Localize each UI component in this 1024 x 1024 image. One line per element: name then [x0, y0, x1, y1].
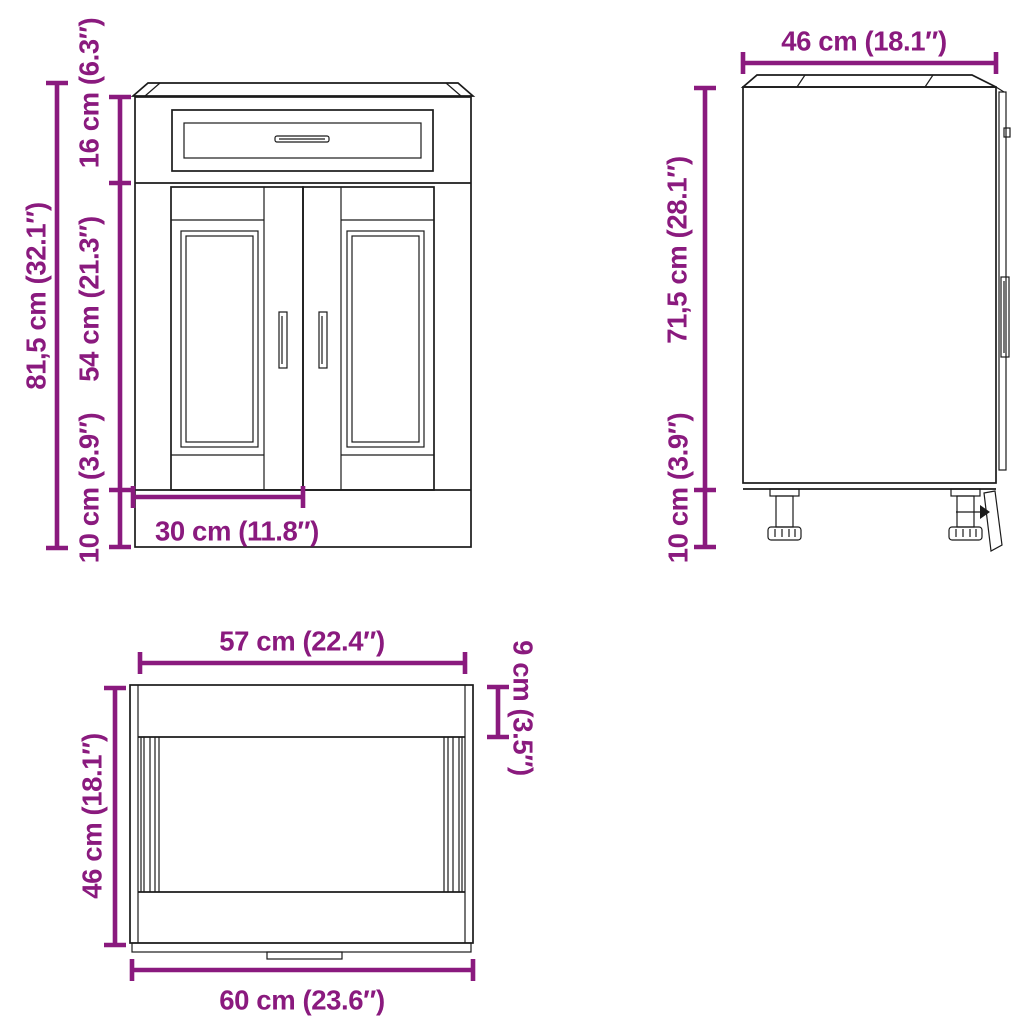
top-view-outline	[130, 685, 473, 943]
side-view: 46 cm (18.1″) 71,5 cm (28.1″) 10 cm (3.9…	[662, 26, 1011, 564]
left-foot-knurling	[775, 529, 795, 537]
door-edge-profile	[999, 92, 1006, 470]
dim-label-leg-height: 10 cm (3.9″)	[663, 413, 694, 564]
front-view-dimensions: 81,5 cm (32.1″) 16 cm (6.3″) 54 cm (21.3…	[21, 18, 319, 564]
left-foot-stem	[776, 496, 793, 527]
dim-label-front-band-depth: 9 cm (3.5″)	[508, 640, 539, 776]
dim-label-drawer-height: 16 cm (6.3″)	[74, 18, 105, 169]
right-door-panel-inner	[352, 236, 419, 442]
plinth-clip-arrow	[980, 505, 990, 519]
top-view-drawing	[130, 685, 473, 959]
dim-label-door-width: 30 cm (11.8″)	[155, 516, 319, 547]
right-door-rails	[341, 220, 434, 455]
left-door-handle	[279, 312, 287, 368]
dim-line-height-segments	[109, 97, 131, 547]
dim-label-total-width: 60 cm (23.6″)	[219, 985, 384, 1016]
left-door-rails	[171, 220, 264, 455]
front-view: 81,5 cm (32.1″) 16 cm (6.3″) 54 cm (21.3…	[21, 18, 474, 564]
right-foot-plate	[951, 489, 980, 496]
left-foot-plate	[770, 489, 799, 496]
left-door	[171, 187, 303, 490]
right-foot-base	[949, 527, 982, 540]
countertop-bevel-seams	[145, 83, 461, 96]
cabinet-dimension-diagram: 81,5 cm (32.1″) 16 cm (6.3″) 54 cm (21.3…	[0, 0, 1024, 1024]
right-door-panel-outer	[347, 231, 424, 447]
worktop-front-edge-strip	[132, 943, 471, 952]
left-foot	[768, 489, 801, 540]
top-view-dimensions: 57 cm (22.4″) 9 cm (3.5″) 46 cm (18.1″) …	[77, 626, 539, 1016]
dim-label-top-depth: 46 cm (18.1″)	[77, 733, 108, 898]
right-door-handle	[319, 312, 327, 368]
left-door-panel-inner	[186, 236, 253, 442]
side-panel-body	[743, 87, 996, 483]
right-door	[303, 187, 434, 490]
hinge-lines-left	[141, 737, 159, 892]
dim-label-total-height: 81,5 cm (32.1″)	[21, 202, 52, 390]
side-top-slab	[743, 75, 996, 87]
left-door-panel-outer	[181, 231, 258, 447]
side-view-drawing	[743, 75, 1010, 551]
dim-line-total-width	[132, 959, 473, 981]
drawer-front-frame	[172, 110, 433, 171]
side-wall-inner-edges	[138, 685, 465, 943]
hinge-lines-right	[444, 737, 462, 892]
front-view-drawing	[133, 83, 473, 547]
dim-line-front-band-depth	[487, 687, 509, 737]
side-top-seams	[797, 75, 1004, 92]
door-handle-side	[1001, 277, 1009, 357]
dim-label-inner-width: 57 cm (22.4″)	[219, 626, 384, 657]
top-view: 57 cm (22.4″) 9 cm (3.5″) 46 cm (18.1″) …	[77, 626, 539, 1016]
left-foot-base	[768, 527, 801, 540]
dim-label-door-height: 54 cm (21.3″)	[74, 216, 105, 381]
dim-line-side-height-segments	[694, 88, 716, 547]
dim-label-depth: 46 cm (18.1″)	[781, 26, 946, 57]
dim-label-body-height: 71,5 cm (28.1″)	[662, 156, 693, 344]
plinth-board-edge	[984, 491, 1002, 551]
drawer-front-panel	[184, 123, 421, 158]
right-foot-knurling	[956, 529, 976, 537]
countertop-front	[133, 83, 473, 96]
dim-label-plinth-height: 10 cm (3.9″)	[74, 413, 105, 564]
handle-notch-top-view	[267, 952, 342, 959]
right-foot	[949, 489, 1002, 551]
door-knob-side	[1004, 128, 1010, 137]
